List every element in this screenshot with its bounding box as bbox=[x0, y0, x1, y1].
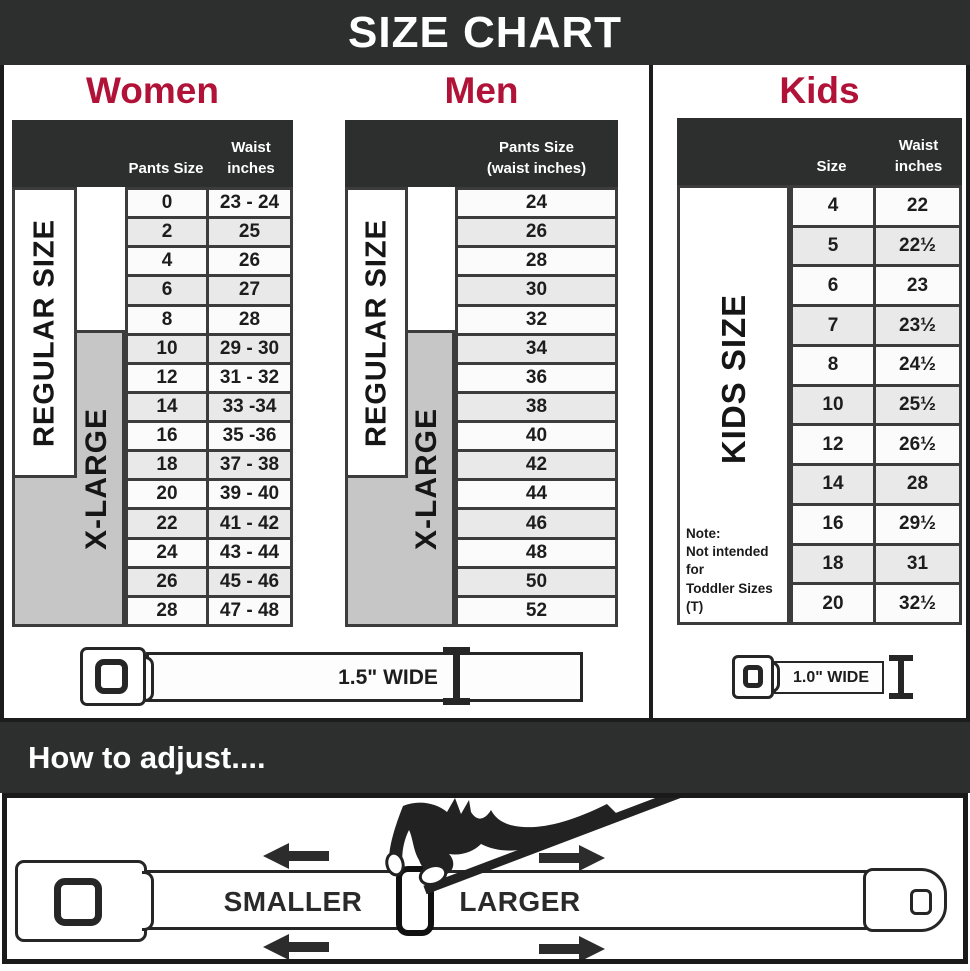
table-cell: 26 bbox=[209, 248, 290, 274]
adjust-diagram: SMALLER LARGER bbox=[2, 793, 968, 964]
kids-col1-header: Size bbox=[790, 156, 873, 178]
women-col1-header: Pants Size bbox=[125, 158, 207, 180]
buckle-button-icon bbox=[95, 659, 128, 694]
table-cell: 28 bbox=[876, 466, 959, 503]
table-cell: 36 bbox=[458, 365, 615, 391]
women-col2-header: Waist inches bbox=[209, 137, 293, 181]
table-cell: 14 bbox=[128, 394, 206, 420]
table-cell: 31 - 32 bbox=[209, 365, 290, 391]
table-cell: 24 bbox=[128, 540, 206, 566]
table-cell: 47 - 48 bbox=[209, 598, 290, 624]
width-marker-icon bbox=[453, 649, 460, 705]
table-cell: 22½ bbox=[876, 228, 959, 265]
table-cell: 40 bbox=[458, 423, 615, 449]
table-cell: 4 bbox=[128, 248, 206, 274]
table-cell: 28 bbox=[458, 248, 615, 274]
women-regular-label: REGULAR SIZE bbox=[28, 219, 61, 447]
table-cell: 31 bbox=[876, 546, 959, 583]
kids-note: Note: Not intended for Toddler Sizes (T) bbox=[686, 525, 787, 616]
table-cell: 24½ bbox=[876, 347, 959, 384]
kids-table-header: Size Waist inches bbox=[677, 118, 962, 185]
table-cell: 37 - 38 bbox=[209, 452, 290, 478]
section-divider bbox=[649, 65, 653, 722]
table-cell: 48 bbox=[458, 540, 615, 566]
table-cell: 41 - 42 bbox=[209, 510, 290, 536]
table-cell: 16 bbox=[128, 423, 206, 449]
kids-size-label: KIDS SIZE bbox=[715, 294, 753, 464]
kids-belt-strap: 1.0" WIDE bbox=[774, 661, 884, 694]
women-table-header: Pants Size Waist inches bbox=[12, 120, 293, 187]
table-cell: 23 - 24 bbox=[209, 190, 290, 216]
table-cell: 22 bbox=[128, 510, 206, 536]
men-table-header: Pants Size (waist inches) bbox=[345, 120, 618, 187]
frame-right bbox=[966, 65, 970, 722]
men-col-header: Pants Size (waist inches) bbox=[455, 137, 618, 181]
smaller-label: SMALLER bbox=[213, 886, 373, 918]
buckle-button-icon bbox=[54, 878, 102, 926]
belt-buckle-icon bbox=[732, 655, 774, 699]
table-cell: 12 bbox=[793, 426, 873, 463]
table-cell: 25 bbox=[209, 219, 290, 245]
table-cell: 22 bbox=[876, 188, 959, 225]
table-cell: 6 bbox=[793, 267, 873, 304]
table-cell: 45 - 46 bbox=[209, 569, 290, 595]
kids-belt-width-label: 1.0" WIDE bbox=[776, 669, 886, 687]
table-cell: 23 bbox=[876, 267, 959, 304]
women-title: Women bbox=[12, 70, 293, 112]
table-cell: 32½ bbox=[876, 585, 959, 622]
adjust-heading: How to adjust.... bbox=[28, 740, 266, 776]
table-cell: 39 - 40 bbox=[209, 481, 290, 507]
adult-belt-width-label: 1.5" WIDE bbox=[308, 666, 468, 690]
table-cell: 4 bbox=[793, 188, 873, 225]
page-title: SIZE CHART bbox=[348, 8, 622, 58]
table-cell: 8 bbox=[128, 307, 206, 333]
table-cell: 7 bbox=[793, 307, 873, 344]
kids-col2-header: Waist inches bbox=[875, 135, 962, 179]
adjust-band: How to adjust.... bbox=[0, 722, 970, 793]
women-size-bands: REGULAR SIZE X-LARGE bbox=[12, 187, 125, 627]
belt-buckle-icon bbox=[15, 860, 147, 942]
kids-table: 422 522½ 623 723½ 824½ 1025½ 1226½ 1428 … bbox=[790, 185, 962, 625]
table-cell: 43 - 44 bbox=[209, 540, 290, 566]
table-cell: 35 -36 bbox=[209, 423, 290, 449]
women-table: 023 - 24 225 426 627 828 1029 - 30 1231 … bbox=[125, 187, 293, 627]
belt-buckle-icon bbox=[80, 647, 146, 706]
kids-title: Kids bbox=[677, 70, 962, 112]
table-cell: 18 bbox=[793, 546, 873, 583]
table-cell: 50 bbox=[458, 569, 615, 595]
table-cell: 27 bbox=[209, 277, 290, 303]
table-cell: 28 bbox=[128, 598, 206, 624]
table-cell: 10 bbox=[128, 336, 206, 362]
table-cell: 8 bbox=[793, 347, 873, 384]
buckle-button-icon bbox=[743, 665, 763, 688]
table-cell: 26½ bbox=[876, 426, 959, 463]
table-cell: 46 bbox=[458, 510, 615, 536]
table-cell: 14 bbox=[793, 466, 873, 503]
table-cell: 29 - 30 bbox=[209, 336, 290, 362]
table-cell: 38 bbox=[458, 394, 615, 420]
table-cell: 29½ bbox=[876, 506, 959, 543]
table-cell: 26 bbox=[458, 219, 615, 245]
table-cell: 24 bbox=[458, 190, 615, 216]
table-cell: 34 bbox=[458, 336, 615, 362]
table-cell: 32 bbox=[458, 307, 615, 333]
men-size-bands: REGULAR SIZE X-LARGE bbox=[345, 187, 455, 627]
arrow-left-icon bbox=[263, 934, 329, 960]
table-cell: 30 bbox=[458, 277, 615, 303]
belt-end-slot-icon bbox=[910, 889, 932, 915]
table-cell: 5 bbox=[793, 228, 873, 265]
arrow-left-icon bbox=[263, 843, 329, 869]
women-xlarge-label: X-LARGE bbox=[80, 408, 114, 550]
table-cell: 44 bbox=[458, 481, 615, 507]
size-chart-page: SIZE CHART Women Men Kids Pants Size Wai… bbox=[0, 0, 970, 971]
kids-size-band: KIDS SIZE Note: Not intended for Toddler… bbox=[677, 185, 790, 625]
men-xlarge-label: X-LARGE bbox=[410, 408, 444, 550]
frame-left bbox=[0, 65, 4, 722]
table-cell: 42 bbox=[458, 452, 615, 478]
table-cell: 2 bbox=[128, 219, 206, 245]
table-cell: 12 bbox=[128, 365, 206, 391]
table-cell: 28 bbox=[209, 307, 290, 333]
table-cell: 6 bbox=[128, 277, 206, 303]
belt-end-icon bbox=[863, 868, 947, 932]
table-cell: 23½ bbox=[876, 307, 959, 344]
men-table: 24 26 28 30 32 34 36 38 40 42 44 46 48 5… bbox=[455, 187, 618, 627]
table-cell: 33 -34 bbox=[209, 394, 290, 420]
table-cell: 25½ bbox=[876, 387, 959, 424]
hand-icon bbox=[367, 798, 707, 959]
table-cell: 10 bbox=[793, 387, 873, 424]
banner: SIZE CHART bbox=[0, 0, 970, 65]
table-cell: 26 bbox=[128, 569, 206, 595]
table-cell: 18 bbox=[128, 452, 206, 478]
table-cell: 16 bbox=[793, 506, 873, 543]
table-cell: 20 bbox=[793, 585, 873, 622]
table-cell: 52 bbox=[458, 598, 615, 624]
table-cell: 20 bbox=[128, 481, 206, 507]
adult-belt-strap: 1.5" WIDE bbox=[146, 652, 583, 702]
men-title: Men bbox=[345, 70, 618, 112]
table-cell: 0 bbox=[128, 190, 206, 216]
men-regular-label: REGULAR SIZE bbox=[360, 219, 393, 447]
buckle-latch-icon bbox=[142, 871, 154, 931]
